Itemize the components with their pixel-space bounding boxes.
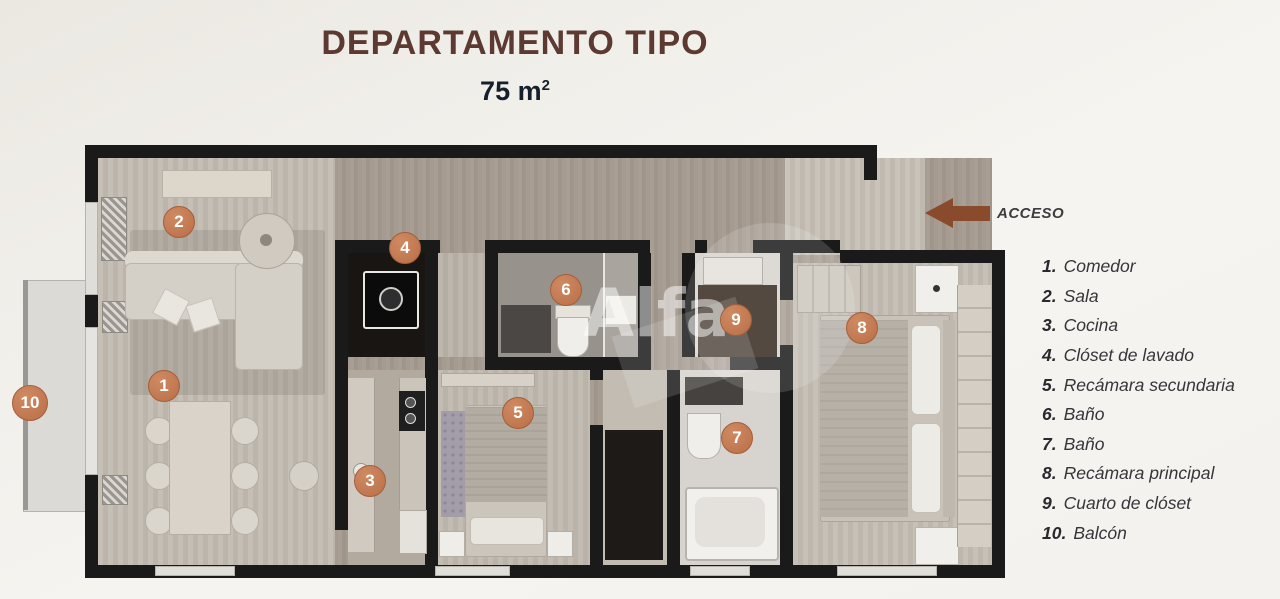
shelf: [101, 197, 127, 261]
wardrobe: [957, 285, 991, 547]
room-badge-7: 7: [721, 422, 753, 454]
nightstand-knob: [933, 285, 940, 292]
legend-item-number: 7.: [1042, 434, 1057, 455]
bed-pillow: [911, 423, 941, 513]
window: [690, 566, 750, 576]
bedroom-rug: [441, 411, 467, 517]
legend-item: 8.Recámara principal: [1042, 459, 1235, 489]
toilet: [687, 413, 721, 459]
room-badge-4: 4: [389, 232, 421, 264]
floor-bedroom-5-nook: [438, 253, 485, 357]
wall: [590, 425, 603, 565]
window: [85, 202, 98, 295]
stove-burner: [405, 413, 416, 424]
legend-item: 3.Cocina: [1042, 311, 1235, 341]
watermark: Alfa: [583, 275, 730, 352]
legend-item-label: Recámara principal: [1064, 463, 1215, 484]
bathroom-vanity: [501, 305, 551, 353]
bathtub-basin: [695, 497, 765, 547]
legend-item-label: Comedor: [1064, 256, 1136, 277]
wall: [85, 145, 877, 158]
balcony-door: [85, 327, 98, 475]
wall: [85, 145, 98, 202]
floor-plan: Alfa ACCESO 1 2 3 4 5 6 7 8 9 10: [85, 145, 1005, 578]
legend-item-label: Sala: [1064, 286, 1099, 307]
access-arrow-icon: [925, 198, 953, 228]
wall: [485, 253, 498, 357]
window: [435, 566, 510, 576]
dining-chair: [231, 417, 259, 445]
dining-chair: [231, 507, 259, 535]
legend-item: 5.Recámara secundaria: [1042, 370, 1235, 400]
shelf: [102, 475, 128, 505]
nightstand: [547, 531, 573, 557]
wall: [85, 475, 98, 578]
legend-item: 1.Comedor: [1042, 252, 1235, 282]
fridge: [399, 510, 427, 554]
legend-item-number: 3.: [1042, 315, 1057, 336]
wall: [864, 158, 877, 180]
tv-console: [162, 170, 272, 198]
area-value: 75 m: [480, 76, 542, 106]
area-label: 75 m2: [85, 76, 945, 107]
room-badge-2: 2: [163, 206, 195, 238]
window: [837, 566, 937, 576]
legend-item-number: 9.: [1042, 493, 1057, 514]
legend-item-number: 2.: [1042, 286, 1057, 307]
area-exponent: 2: [542, 77, 550, 94]
sofa-chaise: [235, 263, 303, 370]
wall: [485, 240, 650, 253]
coffee-table-decor: [260, 234, 272, 246]
washing-machine-door: [379, 287, 403, 311]
access-arrow-icon: [952, 206, 990, 221]
legend-item-number: 5.: [1042, 375, 1057, 396]
wall: [667, 370, 680, 565]
room-badge-3: 3: [354, 465, 386, 497]
legend-item-label: Clóset de lavado: [1064, 345, 1194, 366]
legend-item: 7.Baño: [1042, 430, 1235, 460]
legend-item: 4.Clóset de lavado: [1042, 341, 1235, 371]
room-badge-6: 6: [550, 274, 582, 306]
legend-item: 10.Balcón: [1042, 518, 1235, 548]
bed-pillow: [470, 517, 544, 545]
legend-item: 6.Baño: [1042, 400, 1235, 430]
desk: [441, 373, 535, 387]
room-badge-5: 5: [502, 397, 534, 429]
wall: [85, 295, 98, 327]
legend-item-number: 8.: [1042, 463, 1057, 484]
page-title: DEPARTAMENTO TIPO: [85, 24, 945, 63]
room-badge-10: 10: [12, 385, 48, 421]
legend-item-number: 6.: [1042, 404, 1057, 425]
room-badge-1: 1: [148, 370, 180, 402]
window: [155, 566, 235, 576]
legend-item-label: Baño: [1064, 434, 1105, 455]
dining-chair: [231, 462, 259, 490]
legend-item-label: Cuarto de clóset: [1064, 493, 1191, 514]
nightstand: [915, 527, 959, 565]
hall-closet-dark: [605, 430, 663, 560]
wall: [335, 240, 348, 530]
dining-table: [169, 401, 231, 535]
wall: [335, 240, 440, 253]
access-label: ACCESO: [997, 205, 1064, 222]
wall: [992, 250, 1005, 578]
floor-plan-page: DEPARTAMENTO TIPO 75 m2: [0, 0, 1280, 599]
legend-item: 2.Sala: [1042, 282, 1235, 312]
legend-item-label: Baño: [1064, 404, 1105, 425]
room-badge-9: 9: [720, 304, 752, 336]
legend-item: 9.Cuarto de clóset: [1042, 489, 1235, 519]
legend: 1.Comedor 2.Sala 3.Cocina 4.Clóset de la…: [1042, 252, 1235, 548]
wall: [840, 250, 1005, 263]
legend-item-label: Recámara secundaria: [1064, 375, 1235, 396]
legend-item-number: 1.: [1042, 256, 1057, 277]
legend-item-label: Cocina: [1064, 315, 1118, 336]
room-badge-8: 8: [846, 312, 878, 344]
nightstand: [439, 531, 465, 557]
legend-item-number: 10.: [1042, 523, 1066, 544]
wall: [590, 370, 603, 380]
bed-headboard: [943, 320, 955, 517]
bed-pillow: [911, 325, 941, 415]
stove-burner: [405, 397, 416, 408]
legend-item-label: Balcón: [1073, 523, 1127, 544]
stool: [289, 461, 319, 491]
legend-item-number: 4.: [1042, 345, 1057, 366]
